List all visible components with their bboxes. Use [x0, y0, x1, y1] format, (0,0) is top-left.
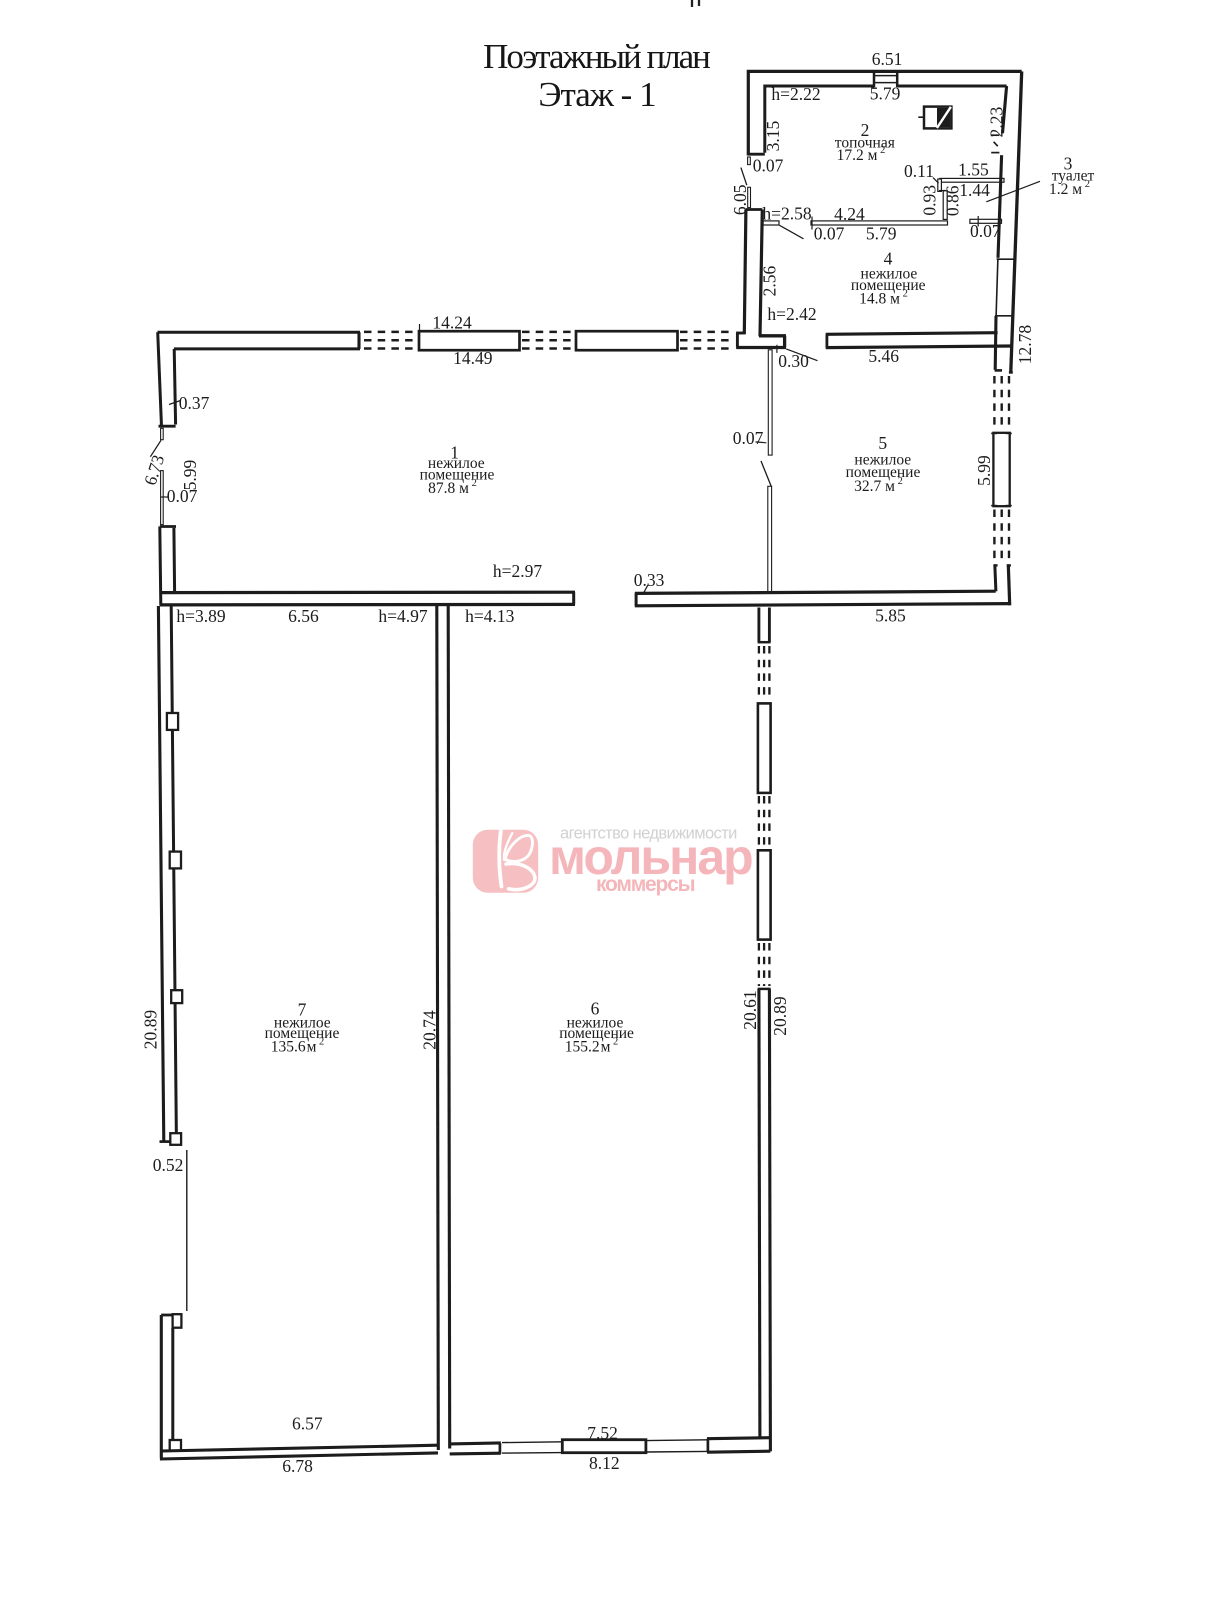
svg-text:6.56: 6.56 — [288, 606, 319, 626]
svg-text:0.07: 0.07 — [970, 221, 1001, 241]
svg-text:0.30: 0.30 — [778, 351, 809, 371]
svg-text:1.44: 1.44 — [959, 180, 990, 200]
svg-text:20.61: 20.61 — [740, 990, 760, 1029]
svg-text:5.46: 5.46 — [868, 346, 899, 366]
svg-text:h=3.89: h=3.89 — [176, 606, 225, 626]
svg-text:155.2м 2: 155.2м 2 — [565, 1037, 619, 1056]
svg-text:0.93: 0.93 — [919, 185, 939, 216]
svg-text:0.07: 0.07 — [814, 223, 845, 243]
svg-text:0.37: 0.37 — [179, 393, 210, 413]
svg-text:135.6м 2: 135.6м 2 — [271, 1037, 325, 1056]
svg-text:h=2.97: h=2.97 — [493, 561, 542, 581]
svg-text:h=4.13: h=4.13 — [465, 606, 514, 626]
svg-text:h=2.58: h=2.58 — [762, 204, 811, 224]
svg-text:6.57: 6.57 — [292, 1414, 323, 1434]
svg-text:h=2.22: h=2.22 — [771, 84, 820, 104]
svg-text:20.89: 20.89 — [770, 996, 790, 1036]
svg-text:0.07: 0.07 — [733, 428, 764, 448]
svg-text:14.49: 14.49 — [453, 348, 493, 368]
svg-text:h=4.97: h=4.97 — [378, 606, 427, 626]
svg-text:12.78: 12.78 — [1015, 325, 1035, 365]
svg-text:14.24: 14.24 — [432, 313, 472, 333]
svg-text:6.51: 6.51 — [872, 49, 903, 69]
svg-text:5.99: 5.99 — [974, 455, 994, 486]
svg-text:20.89: 20.89 — [140, 1010, 160, 1050]
svg-text:5.79: 5.79 — [866, 223, 897, 243]
svg-text:Поэтажный план: Поэтажный план — [483, 37, 710, 76]
svg-text:0.07: 0.07 — [167, 486, 198, 506]
svg-text:5.85: 5.85 — [875, 606, 906, 626]
svg-text:0.86: 0.86 — [942, 185, 962, 216]
svg-text:0.33: 0.33 — [634, 570, 665, 590]
svg-text:0.52: 0.52 — [153, 1155, 184, 1175]
svg-text:коммерсы: коммерсы — [596, 873, 695, 896]
svg-text:1.55: 1.55 — [958, 159, 989, 179]
svg-text:Этаж - 1: Этаж - 1 — [538, 75, 655, 114]
svg-text:20.74: 20.74 — [420, 1010, 440, 1050]
svg-text:h=2.42: h=2.42 — [767, 304, 816, 324]
svg-text:5: 5 — [878, 433, 887, 453]
svg-text:6.78: 6.78 — [282, 1456, 313, 1476]
svg-text:6.05: 6.05 — [730, 184, 750, 215]
svg-text:7.52: 7.52 — [587, 1423, 618, 1443]
svg-text:2.56: 2.56 — [760, 265, 780, 296]
svg-text:4.24: 4.24 — [834, 204, 865, 224]
svg-text:3.15: 3.15 — [763, 120, 783, 151]
svg-text:2.23: 2.23 — [986, 106, 1006, 137]
svg-text:5.79: 5.79 — [870, 84, 901, 104]
svg-text:0.11: 0.11 — [904, 161, 934, 181]
svg-text:0.07: 0.07 — [753, 156, 784, 176]
svg-text:8.12: 8.12 — [589, 1453, 620, 1473]
